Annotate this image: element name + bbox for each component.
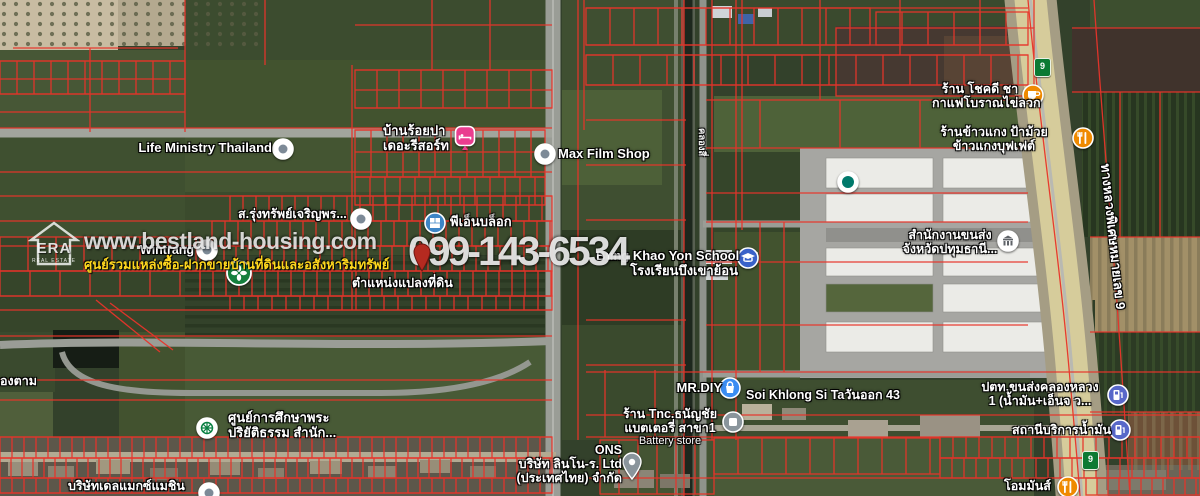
poi-label-line: Life Ministry Thailand bbox=[128, 141, 272, 156]
restaurant-icon[interactable] bbox=[1072, 127, 1094, 154]
poi-label-chokdee-coffee[interactable]: ร้าน โชคดี ชากาแฟโบราณไข่ลวก bbox=[932, 82, 1028, 110]
poi-label-line: สถานีบริการน้ำมัน bbox=[1012, 423, 1108, 437]
poi-label-line: บ้านร้อยปา bbox=[383, 124, 463, 139]
poi-label-dharma-school[interactable]: ศูนย์การศึกษาพระปริยัติธรรม สำนัก... bbox=[228, 411, 340, 440]
poi-label-line: (ประเทศไทย) จำกัด bbox=[492, 471, 622, 485]
poi-label-nong-tam[interactable]: องตาม bbox=[0, 374, 42, 388]
poi-label-s-rung-sap[interactable]: ส.รุ่งทรัพย์เจริญพร... bbox=[238, 207, 356, 221]
poi-label-tnc-battery[interactable]: ร้าน Tnc.ธนัญชัยแบตเตอรี่ สาขา1Battery s… bbox=[614, 407, 726, 447]
poi-label-line: ศูนย์การศึกษาพระ bbox=[228, 411, 340, 426]
poi-label-line: Soi Khlong Si Taวันออก 43 bbox=[746, 388, 916, 402]
poi-label-line: ONS bbox=[492, 443, 622, 457]
fuel-icon[interactable] bbox=[1107, 384, 1129, 411]
poi-label-line: ปตท.ขนส่งคลองหลวง bbox=[972, 380, 1108, 394]
poi-label-delmax-machine[interactable]: บริษัทเดลแมกซ์แมชิน bbox=[68, 479, 200, 493]
poi-label-line: สำนักงานขนส่ง bbox=[896, 228, 1004, 242]
route-shield-icon[interactable]: 9 bbox=[1034, 58, 1051, 77]
poi-label-line: องตาม bbox=[0, 374, 42, 388]
parcel-label: ตำแหน่งแปลงที่ดิน bbox=[352, 276, 453, 290]
poi-label-linno-co[interactable]: ONSบริษัท ลินโน-ร. Ltd(ประเทศไทย) จำกัด bbox=[492, 443, 622, 485]
era-logo-subtext: REAL ESTATE bbox=[28, 258, 80, 264]
place-dot-icon[interactable] bbox=[272, 138, 294, 165]
school-icon[interactable] bbox=[737, 247, 759, 274]
poi-label-max-film-shop[interactable]: Max Film Shop bbox=[558, 147, 668, 162]
poi-label-line: ร้าน Tnc.ธนัญชัย bbox=[614, 407, 726, 421]
store-blue-icon[interactable] bbox=[719, 377, 741, 404]
route-shield-icon[interactable]: 9 bbox=[1082, 451, 1099, 470]
teal-dot-icon[interactable] bbox=[837, 171, 859, 198]
canal-label[interactable]: คลองสี่ bbox=[695, 128, 706, 156]
poi-label-line: Max Film Shop bbox=[558, 147, 668, 162]
poi-label-line: บริษัทเดลแมกซ์แมชิน bbox=[68, 479, 200, 493]
poi-label-soi-khlong-si[interactable]: Soi Khlong Si Taวันออก 43 bbox=[746, 388, 916, 402]
poi-label-life-ministry[interactable]: Life Ministry Thailand bbox=[128, 141, 272, 156]
poi-label-hom-man[interactable]: โอมมันส์ bbox=[1004, 479, 1062, 493]
poi-label-rice-curry-buffet[interactable]: ร้านข้าวแกง ป้าม้วยข้าวแกงบุฟเฟต์ bbox=[918, 125, 1070, 153]
fuel-icon[interactable] bbox=[1109, 419, 1131, 446]
poi-label-fuel-station[interactable]: สถานีบริการน้ำมัน bbox=[1012, 423, 1108, 437]
era-logo: ERA REAL ESTATE bbox=[28, 220, 80, 272]
poi-label-line: เดอะรีสอร์ท bbox=[383, 139, 463, 154]
dharma-wheel-icon[interactable] bbox=[196, 417, 218, 444]
poi-label-line: ร้านข้าวแกง ป้าม้วย bbox=[918, 125, 1070, 139]
poi-label-line: ร้าน โชคดี ชา bbox=[932, 82, 1028, 96]
parcel-pin-icon bbox=[413, 243, 431, 278]
watermark-phone: 099-143-6534 bbox=[408, 228, 627, 275]
poi-label-line: Battery store bbox=[614, 435, 726, 447]
poi-label-line: ส.รุ่งทรัพย์เจริญพร... bbox=[238, 207, 356, 221]
gray-pin-icon[interactable] bbox=[622, 452, 642, 485]
era-logo-text: ERA bbox=[28, 240, 80, 257]
poi-label-line: ปริยัติธรรม สำนัก... bbox=[228, 426, 340, 441]
poi-label-ptt-khlong-luang[interactable]: ปตท.ขนส่งคลองหลวง1 (น้ำมัน+เอ็นจ ว... bbox=[972, 380, 1108, 408]
poi-label-line: บริษัท ลินโน-ร. Ltd bbox=[492, 457, 622, 471]
poi-label-line: MR.DIY bbox=[658, 381, 722, 396]
map-screenshot: Life Ministry Thailandบ้านร้อยปาเดอะรีสอ… bbox=[0, 0, 1200, 496]
poi-label-mr-diy[interactable]: MR.DIY bbox=[658, 381, 722, 396]
poi-label-line: จังหวัดปทุมธานี... bbox=[896, 242, 1004, 256]
poi-label-transport-office[interactable]: สำนักงานขนส่งจังหวัดปทุมธานี... bbox=[896, 228, 1004, 256]
poi-label-line: ข้าวแกงบุฟเฟต์ bbox=[918, 139, 1070, 153]
poi-label-line: 1 (น้ำมัน+เอ็นจ ว... bbox=[972, 394, 1108, 408]
poi-label-resort[interactable]: บ้านร้อยปาเดอะรีสอร์ท bbox=[383, 124, 463, 153]
place-dot-icon[interactable] bbox=[198, 482, 220, 496]
poi-label-line: โอมมันส์ bbox=[1004, 479, 1062, 493]
watermark-tagline: ศูนย์รวมแหล่งซื้อ-ฝากขายบ้านที่ดินและอสั… bbox=[84, 254, 389, 275]
poi-label-line: กาแฟโบราณไข่ลวก bbox=[932, 96, 1028, 110]
place-dot-icon[interactable] bbox=[534, 143, 556, 170]
watermark-website: www.bestland-housing.com bbox=[84, 228, 377, 255]
poi-label-line: แบตเตอรี่ สาขา1 bbox=[614, 421, 726, 435]
